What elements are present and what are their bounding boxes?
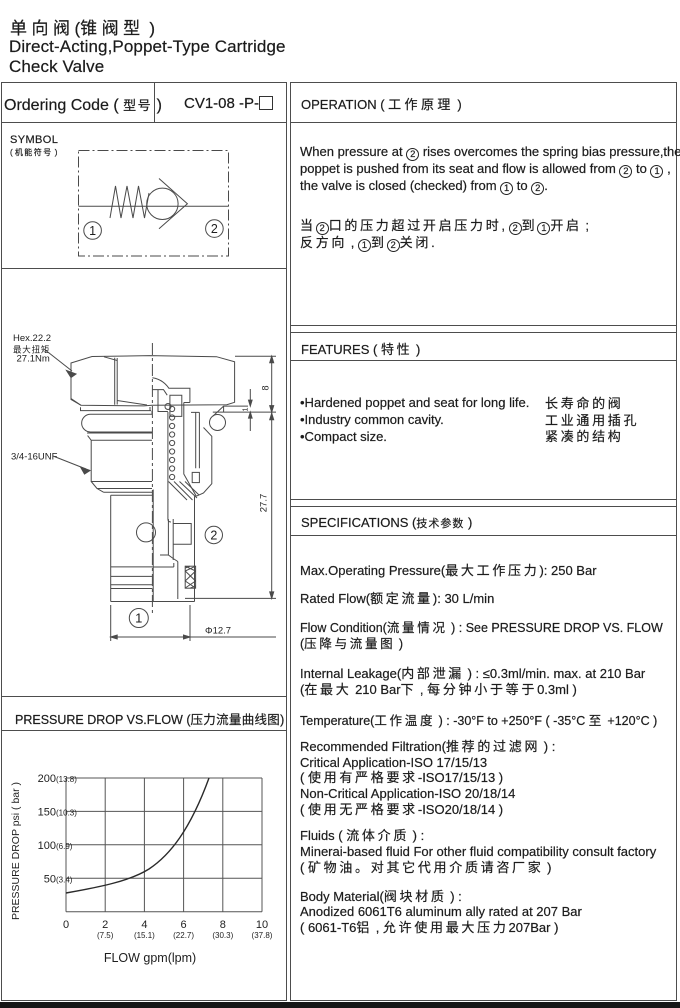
svg-text:(15.1): (15.1) — [134, 931, 155, 940]
svg-text:8: 8 — [261, 385, 271, 390]
svg-text:200: 200 — [38, 773, 56, 785]
svg-text:10: 10 — [256, 919, 268, 931]
svg-text:2: 2 — [211, 222, 218, 236]
svg-text:8: 8 — [220, 919, 226, 931]
svg-text:1: 1 — [241, 407, 250, 411]
svg-text:27.1Nm: 27.1Nm — [17, 354, 50, 365]
svg-text:Hex.22.2: Hex.22.2 — [13, 333, 51, 344]
svg-text:27.7: 27.7 — [259, 494, 270, 513]
svg-text:150: 150 — [38, 806, 56, 818]
svg-text:PRESSURE DROP psi ( bar ): PRESSURE DROP psi ( bar ) — [10, 782, 22, 920]
svg-text:1: 1 — [89, 224, 96, 238]
svg-text:(7.5): (7.5) — [97, 931, 114, 940]
svg-text:(30.3): (30.3) — [212, 931, 233, 940]
svg-text:(22.7): (22.7) — [173, 931, 194, 940]
svg-text:2: 2 — [210, 529, 217, 543]
svg-text:(37.8): (37.8) — [252, 931, 273, 940]
svg-text:50: 50 — [44, 873, 56, 885]
svg-text:(6.9): (6.9) — [56, 842, 73, 851]
svg-text:1: 1 — [135, 611, 142, 626]
svg-text:0: 0 — [63, 919, 69, 931]
svg-text:(13.8): (13.8) — [56, 775, 77, 784]
svg-text:100: 100 — [38, 840, 56, 852]
svg-text:3/4-16UNF: 3/4-16UNF — [11, 452, 58, 463]
svg-text:(10.3): (10.3) — [56, 808, 77, 817]
svg-text:2: 2 — [102, 919, 108, 931]
svg-text:6: 6 — [181, 919, 187, 931]
svg-text:(3.4): (3.4) — [56, 875, 73, 884]
svg-text:Φ12.7: Φ12.7 — [205, 626, 231, 637]
svg-text:4: 4 — [141, 919, 147, 931]
svg-text:FLOW gpm(lpm): FLOW gpm(lpm) — [104, 951, 196, 965]
